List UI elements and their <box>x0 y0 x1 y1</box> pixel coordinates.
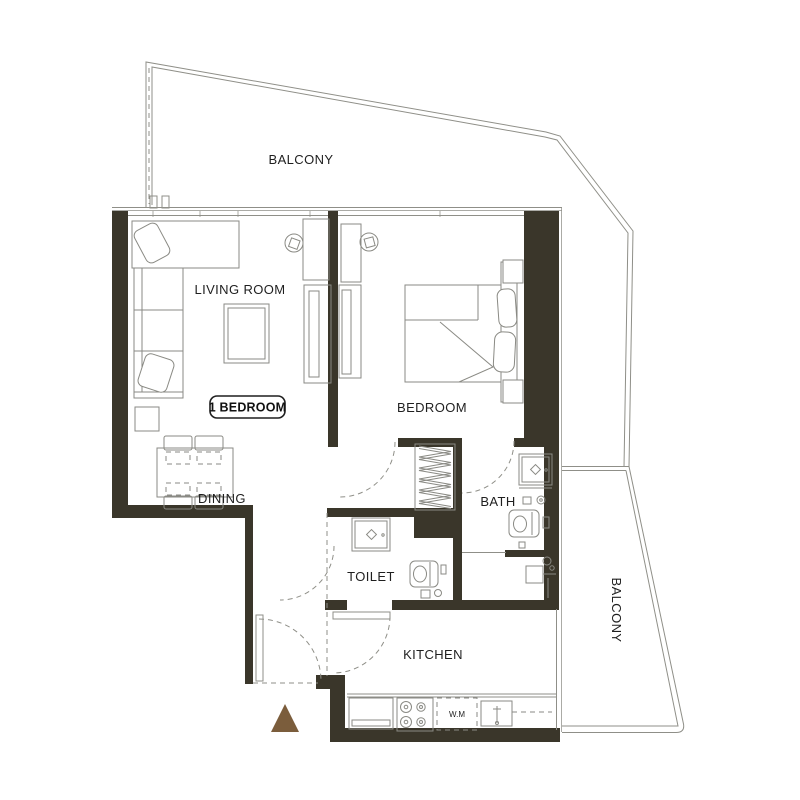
coffee-table <box>224 304 269 363</box>
unit-badge-label: 1 BEDROOM <box>209 401 287 415</box>
desk <box>341 224 361 282</box>
dining-chair-seat <box>166 452 190 464</box>
bedroom: BEDROOM <box>339 224 523 415</box>
bedroom-label: BEDROOM <box>397 400 467 415</box>
kitchen-sink-icon <box>481 701 512 726</box>
chair-icon <box>360 233 378 251</box>
nightstand <box>503 380 523 403</box>
accessory-icon <box>441 565 446 574</box>
toilet-door-swing-arc <box>280 546 334 600</box>
desk <box>303 219 329 280</box>
doors <box>253 441 514 683</box>
kitchen-door-leaf <box>333 612 390 619</box>
kitchen-label: KITCHEN <box>403 647 463 662</box>
bath-label: BATH <box>480 494 515 509</box>
accessory-icon <box>523 497 531 504</box>
tv-unit <box>304 285 331 383</box>
living-room-label: LIVING ROOM <box>194 282 285 297</box>
balcony-post-icon <box>162 196 169 208</box>
wc-icon <box>509 510 539 537</box>
wardrobe <box>415 444 455 510</box>
washbasin-icon <box>352 518 390 551</box>
stove-icon <box>397 698 433 731</box>
dining-table <box>157 448 233 497</box>
base-cabinet <box>349 698 393 729</box>
dining-label: DINING <box>198 491 246 506</box>
wall <box>245 512 253 684</box>
entrance-marker <box>271 704 299 732</box>
balcony-right-label: BALCONY <box>609 578 624 643</box>
floor-drain-icon <box>421 590 430 598</box>
pillow <box>493 332 516 373</box>
balcony-post-icon <box>150 196 157 208</box>
washing-machine: W.M <box>437 698 477 730</box>
side-table <box>135 407 159 431</box>
floor-plan-svg: BALCONY BALCONY <box>0 0 800 800</box>
washing-machine-label: W.M <box>449 710 465 719</box>
entrance-door-leaf <box>256 615 263 681</box>
bath: BATH <box>480 454 552 548</box>
toilet-label: TOILET <box>347 569 395 584</box>
wc-icon <box>410 561 438 587</box>
kitchen-door-swing-arc <box>333 616 390 673</box>
shower-room <box>462 553 556 599</box>
dining-chair-seat <box>166 483 190 495</box>
accessory-icon <box>435 590 442 597</box>
balcony-top-label: BALCONY <box>269 152 334 167</box>
bath-door-swing-arc <box>462 441 514 493</box>
pillow <box>497 288 518 327</box>
dining: DINING <box>157 436 246 509</box>
entrance-door-swing-arc <box>259 619 321 681</box>
nightstand <box>503 260 523 283</box>
dining-chair-seat <box>197 452 221 464</box>
wall <box>112 211 128 518</box>
wall <box>112 505 253 518</box>
accessory-icon <box>519 542 525 548</box>
wall <box>330 684 345 734</box>
unit-badge: 1 BEDROOM <box>209 396 287 418</box>
accessory-icon <box>537 496 545 504</box>
wall <box>524 211 559 443</box>
tv-screen <box>342 290 351 374</box>
tv-screen <box>309 291 319 377</box>
kitchen: W.M KITCHEN <box>347 647 556 731</box>
chair-icon <box>285 234 303 252</box>
balcony-right: BALCONY <box>562 467 684 733</box>
bedroom-door-swing-arc <box>340 442 395 497</box>
floor-plan: BALCONY BALCONY <box>0 0 800 800</box>
